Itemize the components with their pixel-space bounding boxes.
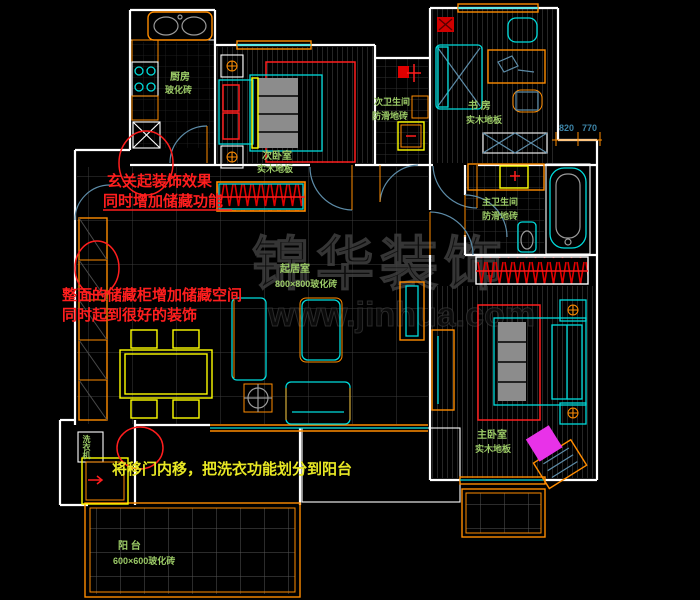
living-material: 800×800玻化砖	[275, 278, 337, 289]
balcony-label: 阳 台	[118, 539, 141, 552]
laundry-label: 洗衣机	[82, 435, 90, 459]
cabinet-note-line1: 整面的储藏柜增加储藏空间	[62, 286, 242, 304]
floor-plan-canvas: 锦华装饰 www.jinhua.com	[0, 0, 700, 600]
balcony-material: 600×600玻化砖	[113, 555, 175, 566]
bathtub-frame	[546, 164, 590, 254]
laundry-note: 将移门内移，把洗衣功能划分到阳台	[112, 460, 352, 478]
sink-bowl-right	[182, 17, 206, 35]
entry-note-line1: 玄关起装饰效果	[107, 172, 213, 190]
second-bedroom-label: 次卧室	[262, 149, 292, 162]
master-wardrobe	[476, 257, 588, 284]
dimension-group: 820 770	[552, 123, 602, 146]
cabinet-note-line2: 同时起到很好的装饰	[62, 306, 197, 324]
kitchen-label: 厨房	[170, 70, 190, 83]
entry-wardrobe	[217, 182, 305, 211]
master-bathroom-material: 防滑地砖	[482, 210, 518, 221]
watermark-url: www.jinhua.com	[267, 296, 535, 334]
second-bathroom-material: 防滑地砖	[372, 110, 408, 121]
master-bedroom-material: 实木地板	[475, 443, 512, 454]
dimension-left: 820	[559, 123, 574, 133]
living-label: 起居室	[279, 262, 310, 275]
dimension-right: 770	[582, 123, 597, 133]
study-material: 实木地板	[466, 114, 503, 125]
entry-note-line2: 同时增加储藏功能	[103, 192, 223, 210]
sink-bowl-left	[154, 17, 178, 35]
study-label: 书 房	[468, 99, 491, 112]
master-bedroom-label: 主卧室	[477, 428, 507, 441]
bed-duvet	[258, 78, 298, 148]
floor-plan-stage: 锦华装饰 www.jinhua.com	[0, 0, 700, 600]
second-bedroom-material: 实木地板	[257, 163, 294, 174]
kitchen-material: 玻化砖	[165, 84, 192, 95]
second-bathroom-label: 次卫生间	[374, 96, 410, 107]
kitchen-sink-counter	[148, 12, 212, 40]
master-bathroom-label: 主卫生间	[482, 196, 518, 207]
toilet-mark	[398, 66, 409, 78]
